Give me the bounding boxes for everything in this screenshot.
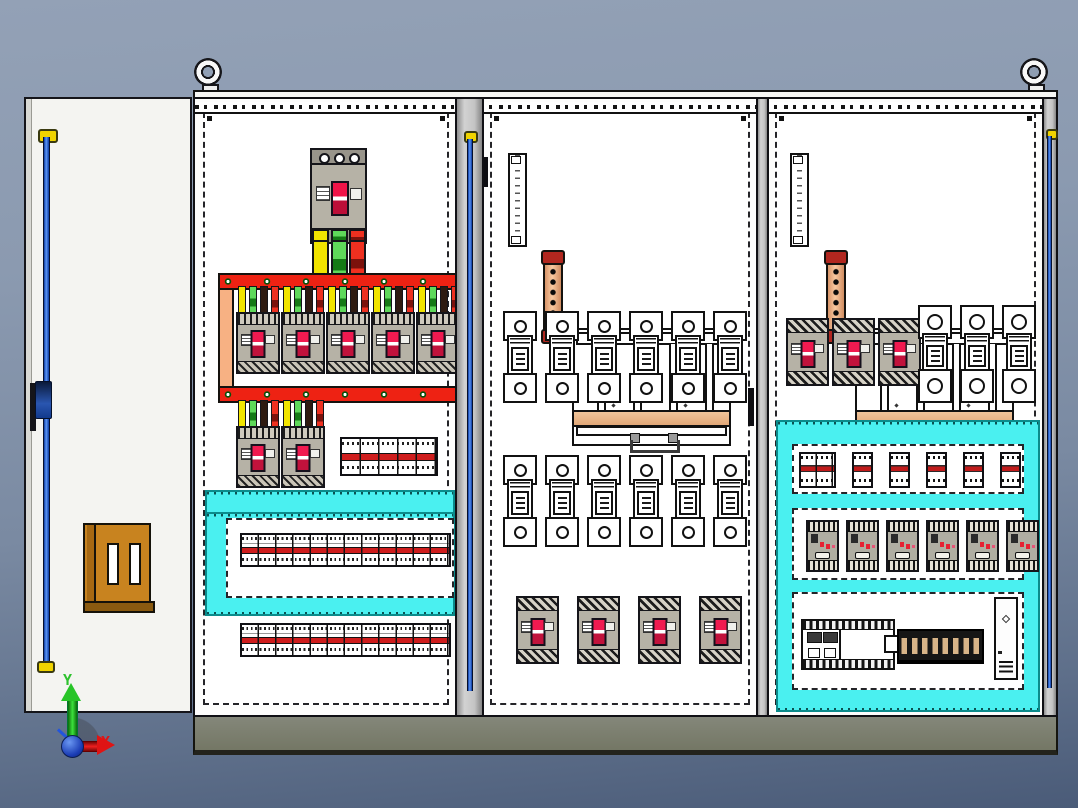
fuse-holder[interactable]: [629, 455, 659, 547]
terminal-hole: [598, 526, 611, 539]
breaker-toggle[interactable]: [591, 618, 606, 646]
mini-breaker[interactable]: [852, 452, 873, 488]
breaker-toggle[interactable]: [251, 444, 266, 472]
bay-divider: [455, 97, 484, 717]
bay-control[interactable]: [765, 97, 1046, 717]
terminal-hole: [556, 464, 569, 477]
feeder-breaker-unit[interactable]: [236, 312, 276, 374]
terminal-hole: [556, 526, 569, 539]
fuse-label: [968, 345, 986, 367]
door-lock-rod[interactable]: [467, 139, 473, 691]
outgoing-breaker[interactable]: [516, 596, 559, 664]
screw: [349, 153, 360, 164]
fuse-label: [595, 491, 613, 515]
phase-strap: [440, 286, 448, 314]
lock-slot: [129, 543, 141, 585]
feeder-breaker[interactable]: [236, 312, 280, 374]
terminal-strip-row[interactable]: [240, 623, 451, 657]
tray-bottom-bar: [576, 426, 727, 436]
fuse-label: [721, 491, 739, 515]
contactor[interactable]: [1006, 520, 1039, 572]
fuse-holder[interactable]: [1002, 305, 1032, 403]
terminal-rail-vertical[interactable]: [790, 153, 809, 247]
indicator: [826, 544, 830, 549]
cabinet-right-edge: [1042, 97, 1058, 717]
bay-distribution[interactable]: [480, 97, 760, 717]
cabinet-plinth[interactable]: [193, 713, 1058, 755]
phase-strap: [271, 286, 279, 314]
phase-strap: [238, 400, 246, 428]
terminal-hole: [514, 382, 527, 395]
origin-ball[interactable]: [61, 735, 84, 758]
contactor-coil-mark: [851, 534, 858, 543]
fuse-label: [553, 347, 571, 371]
phase-straps: [328, 286, 369, 312]
hinge-block: [748, 388, 754, 426]
breaker-toggle[interactable]: [892, 340, 907, 368]
terminal-tab: [1002, 369, 1036, 403]
terminal-hole: [640, 320, 653, 333]
outgoing-breaker-row: [516, 596, 742, 664]
phase-strap: [305, 286, 313, 314]
breaker-label: [265, 335, 275, 344]
fuse-holder-row-2: [503, 455, 743, 547]
terminal-hole: [969, 378, 985, 394]
tray-bracket: [630, 440, 680, 453]
terminal-hole: [640, 464, 653, 477]
breaker-label: [814, 344, 824, 353]
fuse-holder-row: [918, 305, 1032, 403]
mini-breaker[interactable]: [926, 452, 947, 488]
feeder-breaker-unit[interactable]: [416, 312, 456, 374]
breaker-toggle[interactable]: [530, 618, 545, 646]
contactor-button[interactable]: [895, 552, 910, 559]
indicator: [980, 542, 984, 547]
tray-copper-bar: [574, 410, 729, 427]
screw: [894, 403, 898, 407]
terminal-hole: [682, 526, 695, 539]
fuse-label: [637, 491, 655, 515]
fuse-holder[interactable]: [918, 305, 948, 403]
terminal-rail-vertical[interactable]: [508, 153, 527, 247]
terminal-tab: [587, 517, 621, 547]
phase-strap: [418, 286, 426, 314]
contactor-coil-mark: [891, 534, 898, 543]
phase-strap: [249, 286, 257, 314]
door-lock-rod[interactable]: [1047, 136, 1052, 688]
phase-straps: [283, 400, 324, 426]
screw: [319, 153, 330, 164]
feeder-breaker-unit[interactable]: [326, 312, 366, 374]
terminal-hole: [556, 320, 569, 333]
molded-breaker-row: [786, 318, 921, 386]
feeder-breaker[interactable]: [281, 312, 325, 374]
breaker-label: [605, 622, 615, 631]
indicator: [986, 544, 990, 549]
terminal-hole: [927, 378, 943, 394]
phase-strap: [294, 286, 302, 314]
plc-cutout: [792, 592, 1024, 690]
breaker-label: [860, 344, 870, 353]
outgoing-breaker[interactable]: [638, 596, 681, 664]
terminal-hole: [640, 526, 653, 539]
breaker-label: [265, 449, 275, 458]
phase-strap: [384, 286, 392, 314]
screw: [683, 403, 687, 407]
phase-straps: [283, 286, 324, 312]
outgoing-breaker[interactable]: [577, 596, 620, 664]
mini-breaker-row: [799, 452, 1021, 488]
contactor-coil-mark: [811, 534, 818, 543]
breaker-label: [906, 344, 916, 353]
phase-straps: [238, 400, 279, 426]
plc-connector: [824, 648, 836, 658]
phase-strap: [395, 286, 403, 314]
phase-strap: [283, 400, 291, 428]
breaker-label: [666, 622, 676, 631]
terminal-hole: [1011, 378, 1027, 394]
terminal-tab: [713, 373, 747, 403]
contactor-button[interactable]: [975, 552, 990, 559]
breaker-toggle[interactable]: [296, 330, 311, 358]
phase-strap: [238, 286, 246, 314]
contactor[interactable]: [966, 520, 999, 572]
indicator: [832, 545, 835, 548]
terminal-hole: [969, 314, 985, 330]
breaker-label: [544, 622, 554, 631]
phase-strap: [260, 286, 268, 314]
feeder-breaker-unit[interactable]: [281, 312, 321, 374]
terminal-tab: [960, 369, 994, 403]
contactor[interactable]: [846, 520, 879, 572]
terminal-hole: [598, 320, 611, 333]
indicator: [900, 542, 904, 547]
comm-port[interactable]: [807, 632, 822, 643]
screw: [966, 403, 970, 407]
feeder-breaker-row: [236, 312, 456, 374]
fuse-holder[interactable]: [587, 311, 617, 403]
terminal-hole: [927, 314, 943, 330]
frame-gasket: [195, 102, 1052, 114]
feeder-breaker[interactable]: [371, 312, 415, 374]
breaker-toggle[interactable]: [341, 330, 356, 358]
fuse-holder[interactable]: [503, 455, 533, 547]
rod-elbow: [35, 381, 52, 419]
phase-straps: [238, 286, 279, 312]
breaker-toggle[interactable]: [251, 330, 266, 358]
sub-breaker[interactable]: [281, 426, 325, 488]
phase-strap: [406, 286, 414, 314]
breaker-label: [316, 186, 330, 201]
phase-strap: [305, 400, 313, 428]
x-axis-label: X: [101, 733, 110, 751]
terminal-strip-small[interactable]: [340, 437, 438, 476]
contactor[interactable]: [886, 520, 919, 572]
terminal-hole: [514, 320, 527, 333]
terminal-strip-row[interactable]: [240, 533, 451, 567]
sub-breaker-unit[interactable]: [236, 400, 276, 488]
fuse-label: [679, 491, 697, 515]
terminal-tab: [503, 517, 537, 547]
sub-breaker-unit[interactable]: [281, 400, 321, 488]
feeder-breaker-unit[interactable]: [371, 312, 411, 374]
fuse-holder[interactable]: [587, 455, 617, 547]
terminal-hole: [724, 526, 737, 539]
terminal-tab: [629, 373, 663, 403]
phase-strap: [429, 286, 437, 314]
feeder-breaker[interactable]: [416, 312, 460, 374]
contactor[interactable]: [806, 520, 839, 572]
fuse-holder[interactable]: [960, 305, 990, 403]
terminal-tab: [713, 517, 747, 547]
terminal-tab: [545, 373, 579, 403]
terminal-hole: [682, 382, 695, 395]
lifting-eye[interactable]: [194, 58, 222, 86]
mini-breaker[interactable]: [963, 452, 984, 488]
breaker-label: [310, 335, 320, 344]
terminal-tab: [587, 373, 621, 403]
busbar-support: [218, 279, 234, 393]
terminal-hole: [724, 320, 737, 333]
phase-strap: [260, 400, 268, 428]
contactor-button[interactable]: [855, 552, 870, 559]
terminal-hole: [598, 464, 611, 477]
mini-breaker-double[interactable]: [799, 452, 836, 488]
indicator: [952, 545, 955, 548]
terminal-hole: [556, 382, 569, 395]
terminal-hole: [514, 464, 527, 477]
indicator: [820, 542, 824, 547]
fuse-label: [595, 347, 613, 371]
fuse-holder[interactable]: [671, 311, 701, 403]
cad-viewport: Y X: [0, 0, 1078, 808]
fuse-label: [926, 345, 944, 367]
door-lock-block[interactable]: [83, 523, 151, 607]
breaker-label: [727, 622, 737, 631]
contactor-row: [806, 520, 1039, 572]
molded-breaker[interactable]: [878, 318, 921, 386]
contactor-button[interactable]: [815, 552, 830, 559]
breaker-toggle[interactable]: [386, 330, 401, 358]
fuse-holder[interactable]: [713, 455, 743, 547]
phase-strap: [283, 286, 291, 314]
contactor[interactable]: [926, 520, 959, 572]
breaker-label: [350, 188, 362, 200]
mini-breaker-cutout: [792, 444, 1024, 494]
terminal-tab: [671, 517, 705, 547]
fuse-holder[interactable]: [545, 311, 575, 403]
rod-cap-bottom: [37, 661, 55, 673]
terminal-hole: [514, 526, 527, 539]
indicator: [1026, 544, 1030, 549]
power-supply[interactable]: [994, 597, 1018, 680]
fuse-label: [511, 491, 529, 515]
phase-strap: [328, 286, 336, 314]
terminal-hole: [1011, 314, 1027, 330]
terminal-hole: [640, 382, 653, 395]
terminal-hole: [682, 464, 695, 477]
terminal-tab: [503, 373, 537, 403]
terminal-hole: [598, 382, 611, 395]
phase-straps: [418, 286, 459, 312]
phase-strap: [361, 286, 369, 314]
breaker-label: [310, 449, 320, 458]
fuse-holder[interactable]: [629, 311, 659, 403]
terminal-hole: [724, 464, 737, 477]
indicator: [1002, 615, 1010, 623]
sub-breaker-row: [236, 400, 321, 488]
indicator: [866, 544, 870, 549]
terminal-tab: [629, 517, 663, 547]
terminal-hole: [724, 382, 737, 395]
phase-strap: [373, 286, 381, 314]
breaker-toggle[interactable]: [846, 340, 861, 368]
contactor-cutout: [792, 508, 1024, 580]
sub-breaker[interactable]: [236, 426, 280, 488]
breaker-toggle[interactable]: [713, 618, 728, 646]
fuse-label: [679, 347, 697, 371]
breaker-toggle[interactable]: [431, 330, 446, 358]
bay-divider: [756, 97, 769, 717]
indicator: [1020, 542, 1024, 547]
phase-strap: [316, 286, 324, 314]
fuse-label: [721, 347, 739, 371]
phase-strap: [271, 400, 279, 428]
indicator: [906, 544, 910, 549]
terminal-hole: [682, 320, 695, 333]
plc-divider: [839, 629, 841, 660]
outgoing-breaker[interactable]: [699, 596, 742, 664]
breaker-toggle[interactable]: [652, 618, 667, 646]
indicator: [872, 545, 875, 548]
wire-duct-region[interactable]: [776, 420, 1040, 712]
terminal-tab: [545, 517, 579, 547]
mini-breaker[interactable]: [889, 452, 910, 488]
bay-incoming[interactable]: [193, 97, 459, 717]
lock-slot: [107, 543, 119, 585]
breaker-label: [445, 335, 455, 344]
phase-strap: [339, 286, 347, 314]
fuse-label: [553, 491, 571, 515]
contactor-coil-mark: [1011, 534, 1018, 543]
indicator: [912, 545, 915, 548]
contactor-coil-mark: [971, 534, 978, 543]
fuse-label: [511, 347, 529, 371]
indicator: [1032, 545, 1035, 548]
phase-strap: [316, 400, 324, 428]
lock-block-strip: [87, 525, 96, 605]
y-axis-label: Y: [63, 671, 72, 689]
terminal-tab: [918, 369, 952, 403]
fuse-holder[interactable]: [545, 455, 575, 547]
molded-breaker[interactable]: [786, 318, 829, 386]
breaker-label: [355, 335, 365, 344]
fuse-label: [637, 347, 655, 371]
screw: [611, 403, 615, 407]
phase-strap: [249, 400, 257, 428]
phase-strap: [350, 286, 358, 314]
switch-mark: [998, 651, 1002, 654]
breaker-toggle[interactable]: [296, 444, 311, 472]
fuse-holder[interactable]: [671, 455, 701, 547]
phase-strap: [294, 400, 302, 428]
breaker-label: [400, 335, 410, 344]
lock-block-shadow: [83, 601, 155, 613]
molded-breaker[interactable]: [832, 318, 875, 386]
plc-connector: [808, 648, 820, 658]
breaker-toggle[interactable]: [331, 181, 349, 216]
indicator: [946, 544, 950, 549]
contactor-button[interactable]: [1015, 552, 1030, 559]
feeder-breaker[interactable]: [326, 312, 370, 374]
terminal-block-strip[interactable]: [897, 629, 984, 664]
terminal-tab: [671, 373, 705, 403]
cabinet-door[interactable]: [24, 97, 192, 713]
screw: [334, 153, 345, 164]
contactor-button[interactable]: [935, 552, 950, 559]
plc-module[interactable]: [801, 619, 895, 670]
contactor-coil-mark: [931, 534, 938, 543]
mini-breaker[interactable]: [1000, 452, 1021, 488]
phase-straps: [373, 286, 414, 312]
fuse-label: [1010, 345, 1028, 367]
fuse-holder[interactable]: [503, 311, 533, 403]
lifting-eye[interactable]: [1020, 58, 1048, 86]
indicator: [992, 545, 995, 548]
fuse-holder-row-1: [503, 311, 743, 403]
indicator: [940, 542, 944, 547]
breaker-toggle[interactable]: [800, 340, 815, 368]
comm-port[interactable]: [823, 632, 838, 643]
fuse-holder[interactable]: [713, 311, 743, 403]
indicator: [860, 542, 864, 547]
